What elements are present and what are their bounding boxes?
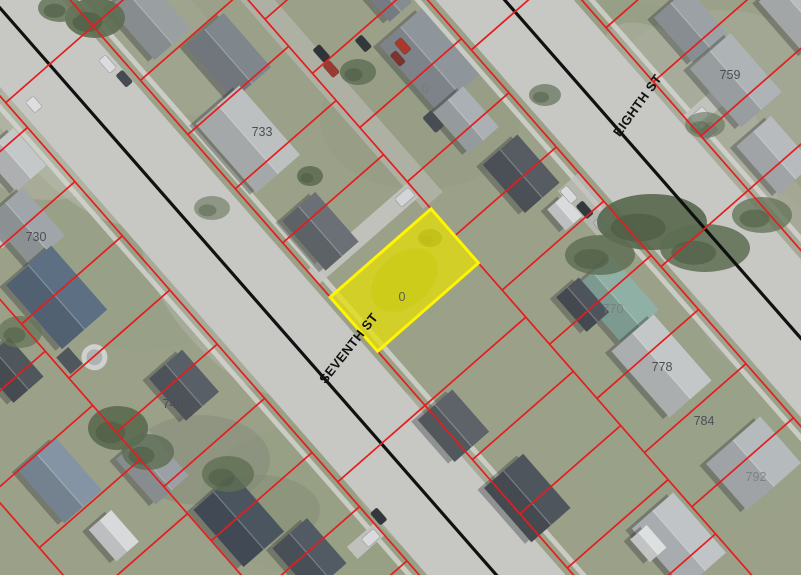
tree-canopy xyxy=(209,469,235,487)
parcel-number-label: 784 xyxy=(694,414,715,428)
parcel-number-label: 733 xyxy=(252,125,273,139)
gis-map-view[interactable]: 733 730 748 759 770 778 784 792 0 0 SEVE… xyxy=(0,0,801,575)
parcel-number-label: 0 xyxy=(422,82,429,96)
parcel-number-label: 748 xyxy=(163,397,184,411)
tree-canopy xyxy=(740,210,770,228)
tree-canopy xyxy=(199,204,217,216)
parcel-number-label: 778 xyxy=(652,360,673,374)
tree-canopy xyxy=(300,173,313,183)
parcel-number-label: 759 xyxy=(720,68,741,82)
tree-canopy xyxy=(533,92,549,103)
tree-canopy xyxy=(574,249,609,269)
parcel-number-label: 730 xyxy=(26,230,47,244)
tree-canopy xyxy=(345,68,363,81)
tree-canopy xyxy=(4,327,26,343)
parcel-map-canvas[interactable]: 733 730 748 759 770 778 784 792 0 0 SEVE… xyxy=(0,0,801,575)
parcel-number-label: 792 xyxy=(746,470,767,484)
highlighted-parcel-number-label: 0 xyxy=(399,290,406,304)
tree-canopy xyxy=(44,4,66,18)
parcel-number-label: 770 xyxy=(603,302,624,316)
